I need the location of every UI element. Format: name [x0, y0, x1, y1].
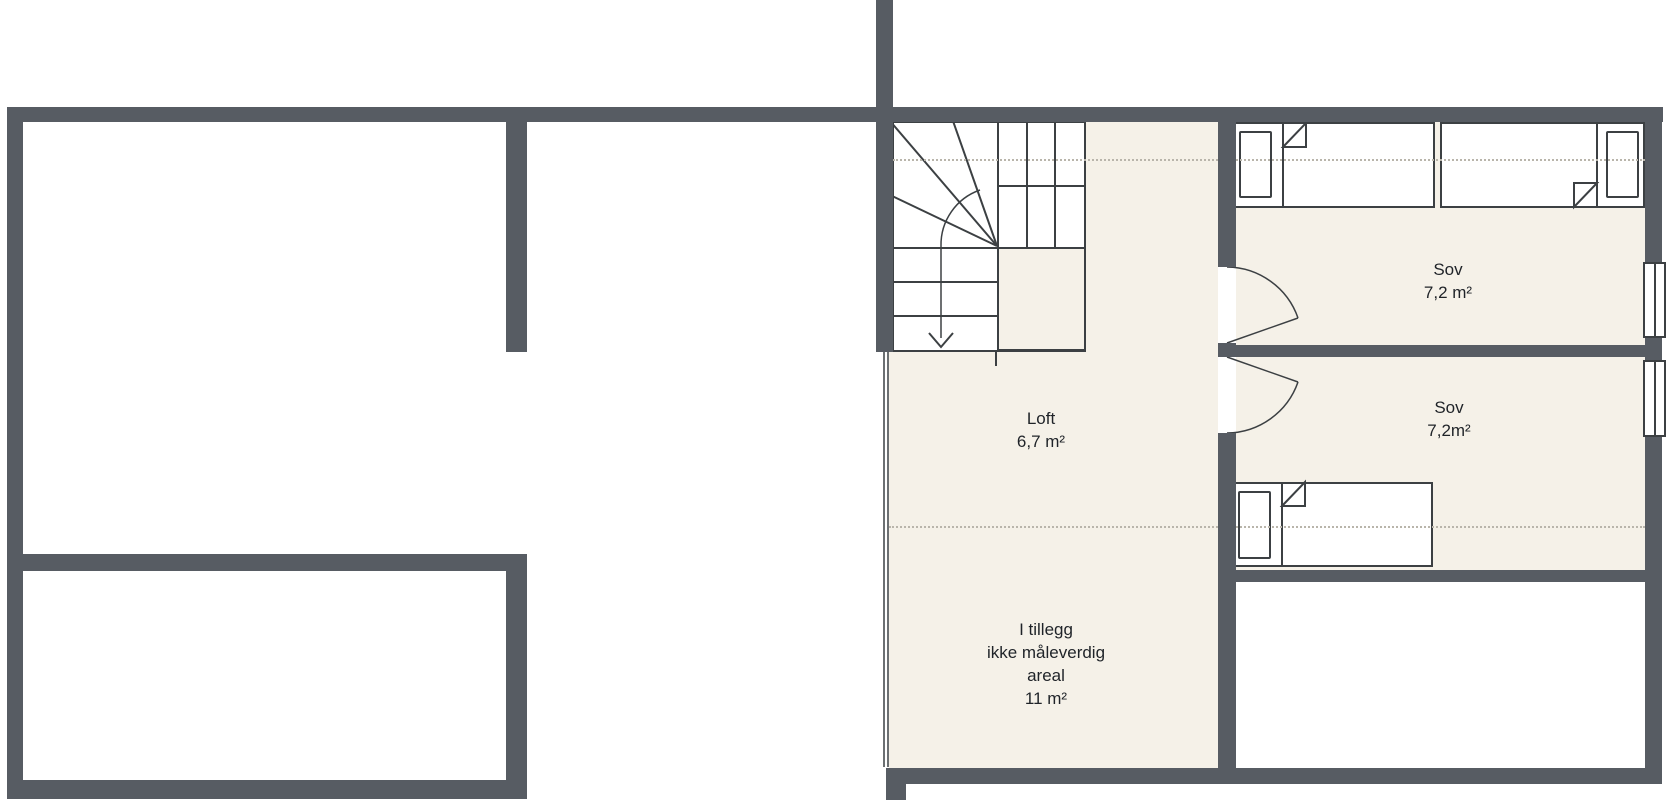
room-name: Sov [1348, 258, 1548, 281]
staircase-icon [890, 121, 1085, 366]
room-label-extra-area: I tillegg ikke måleverdig areal 11 m² [916, 618, 1176, 710]
extra-area-line: areal [916, 664, 1176, 687]
wall-mid-left [7, 554, 527, 571]
wall-right-lower [1645, 437, 1662, 784]
wall-center-upper [876, 0, 893, 352]
room-area: 7,2 m² [1348, 281, 1548, 304]
extra-area-line: 11 m² [916, 687, 1176, 710]
wall-bottom-left [7, 780, 527, 799]
room-label-sov1: Sov 7,2 m² [1348, 258, 1548, 304]
wall-lower-vertical-left [506, 554, 527, 799]
door-icon [1227, 357, 1298, 433]
extra-area-line: I tillegg [916, 618, 1176, 641]
wall-interior-left [506, 122, 527, 352]
room-name: Loft [941, 407, 1141, 430]
ceiling-height-line [893, 159, 1645, 161]
extra-area-line: ikke måleverdig [916, 641, 1176, 664]
wall-left [7, 107, 23, 799]
open-area-boundary [884, 352, 888, 767]
room-label-loft: Loft 6,7 m² [941, 407, 1141, 453]
window-icon [1643, 262, 1666, 338]
floor-plan: Loft 6,7 m² Sov 7,2 m² Sov 7,2m² I tille… [0, 0, 1670, 800]
duvet-fold-icon [1282, 482, 1305, 567]
room-name: Sov [1349, 396, 1549, 419]
wall-partition-upper [1218, 122, 1236, 267]
duvet-fold-icon [1283, 122, 1306, 208]
wall-bedroom2-bottom [1218, 570, 1662, 582]
window-icon [1643, 360, 1666, 437]
room-area: 7,2m² [1349, 419, 1549, 442]
wall-top [7, 107, 1663, 122]
window-glass-line [1654, 362, 1656, 435]
room-area: 6,7 m² [941, 430, 1141, 453]
duvet-fold-icon [1574, 122, 1597, 207]
wall-right-mid [1645, 338, 1662, 360]
room-label-sov2: Sov 7,2m² [1349, 396, 1549, 442]
wall-bottom-center [886, 768, 1662, 784]
wall-stub-bottom [886, 784, 906, 800]
wall-right-upper [1645, 107, 1662, 262]
under-stair-floor [998, 248, 1085, 350]
wall-partition-lower [1218, 433, 1236, 784]
ceiling-height-line [889, 526, 1645, 528]
door-icon [1227, 267, 1298, 343]
wall-partition-mid [1218, 343, 1236, 357]
wall-between-bedrooms [1236, 345, 1662, 357]
window-glass-line [1654, 264, 1656, 336]
